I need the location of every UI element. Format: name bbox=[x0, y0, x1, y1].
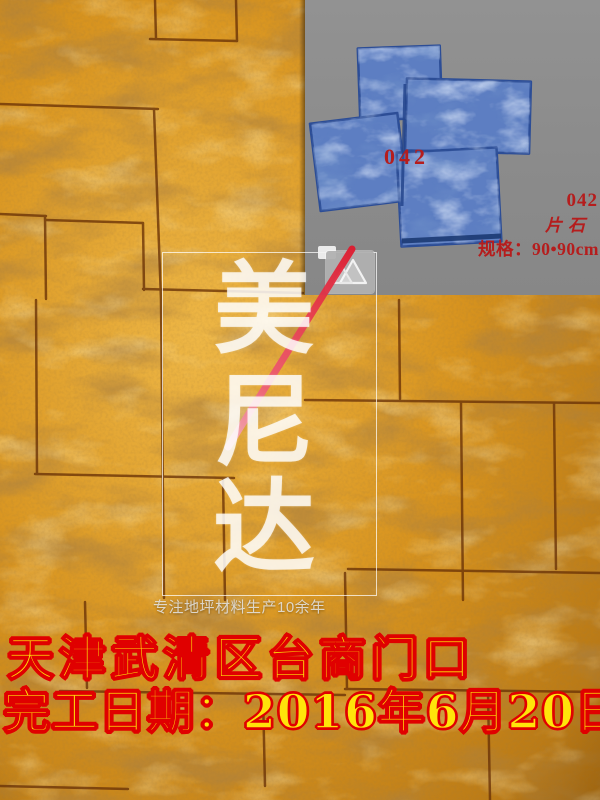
spec-label: 规格：90•90cm bbox=[478, 236, 599, 261]
brand-char-da: 达 bbox=[210, 478, 318, 580]
mold-number-label: 042 bbox=[384, 144, 429, 170]
brand-char-ni: 尼 bbox=[210, 372, 318, 472]
stone-type-label: 片石 bbox=[545, 211, 591, 236]
mountain-logo-icon bbox=[326, 251, 374, 293]
side-number-label: 042 bbox=[567, 190, 599, 212]
watermark-tagline: 专注地坪材料生产10余年 bbox=[153, 596, 326, 617]
brand-char-mei: 美 bbox=[210, 260, 318, 360]
logo-box bbox=[326, 251, 374, 293]
photo-canvas: 042 042 片石 规格：90•90cm 美 尼 达 专注地坪材料生产10余年… bbox=[0, 0, 600, 800]
